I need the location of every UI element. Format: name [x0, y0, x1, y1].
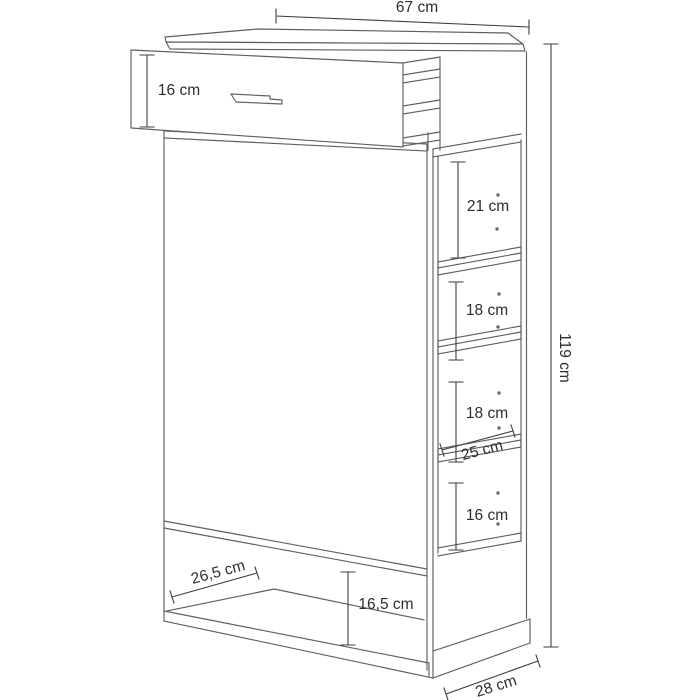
side-shelf-column	[433, 52, 527, 651]
dim-label-compartment-1: 21 cm	[467, 198, 509, 215]
pin-hole	[496, 325, 499, 328]
dim-label-compartment-3: 18 cm	[466, 405, 508, 422]
top-panel	[165, 29, 525, 51]
dimension-line	[449, 282, 463, 360]
pin-hole	[496, 491, 499, 494]
dimension-line	[544, 44, 558, 647]
dim-label-drawer-height: 16 cm	[158, 82, 200, 99]
shelf-pin-holes	[495, 193, 500, 525]
dimension-base-inner-depth: 26,5 cm	[170, 557, 259, 603]
pin-hole	[497, 292, 500, 295]
pin-hole	[496, 193, 499, 196]
dim-label-base-inner-depth: 26,5 cm	[189, 557, 247, 588]
dimension-total-height: 119 cm	[544, 44, 573, 647]
drawer-box-rails	[403, 57, 440, 150]
shelf	[438, 247, 521, 275]
furniture-dimension-diagram: 67 cm 16 cm 21 cm 18 cm 18 cm 16 cm 25 c…	[0, 0, 700, 700]
dim-label-compartment-2: 18 cm	[466, 302, 508, 319]
dimension-depth-bottom: 28 cm	[444, 655, 540, 700]
drawer-rail	[403, 100, 440, 114]
column-bottom-board	[438, 533, 521, 556]
pin-hole	[495, 227, 498, 230]
dimension-line	[451, 162, 465, 258]
dimension-base-opening-height: 16,5 cm	[341, 572, 414, 645]
dim-label-total-height: 119 cm	[556, 333, 573, 383]
bottom-front-band	[164, 611, 433, 678]
column-top-band	[433, 134, 521, 157]
pin-hole	[497, 426, 500, 429]
dimension-compartment-1: 21 cm	[451, 162, 509, 258]
dimension-line	[341, 572, 355, 645]
dim-label-base-opening-height: 16,5 cm	[358, 596, 413, 613]
dim-label-compartment-4: 16 cm	[466, 507, 508, 524]
pin-hole	[497, 391, 500, 394]
diagram-svg: 67 cm 16 cm 21 cm 18 cm 18 cm 16 cm 25 c…	[0, 0, 700, 700]
top-panel-front-edge	[166, 42, 525, 51]
dimension-side-shelf-depth: 25 cm	[440, 425, 515, 464]
dimension-width-top: 67 cm	[276, 0, 529, 34]
dim-label-side-shelf-depth: 25 cm	[460, 437, 505, 464]
dimension-line	[449, 483, 463, 550]
dim-label-width-top: 67 cm	[396, 0, 438, 16]
shelf	[438, 326, 521, 354]
drawer-rail	[403, 69, 440, 83]
